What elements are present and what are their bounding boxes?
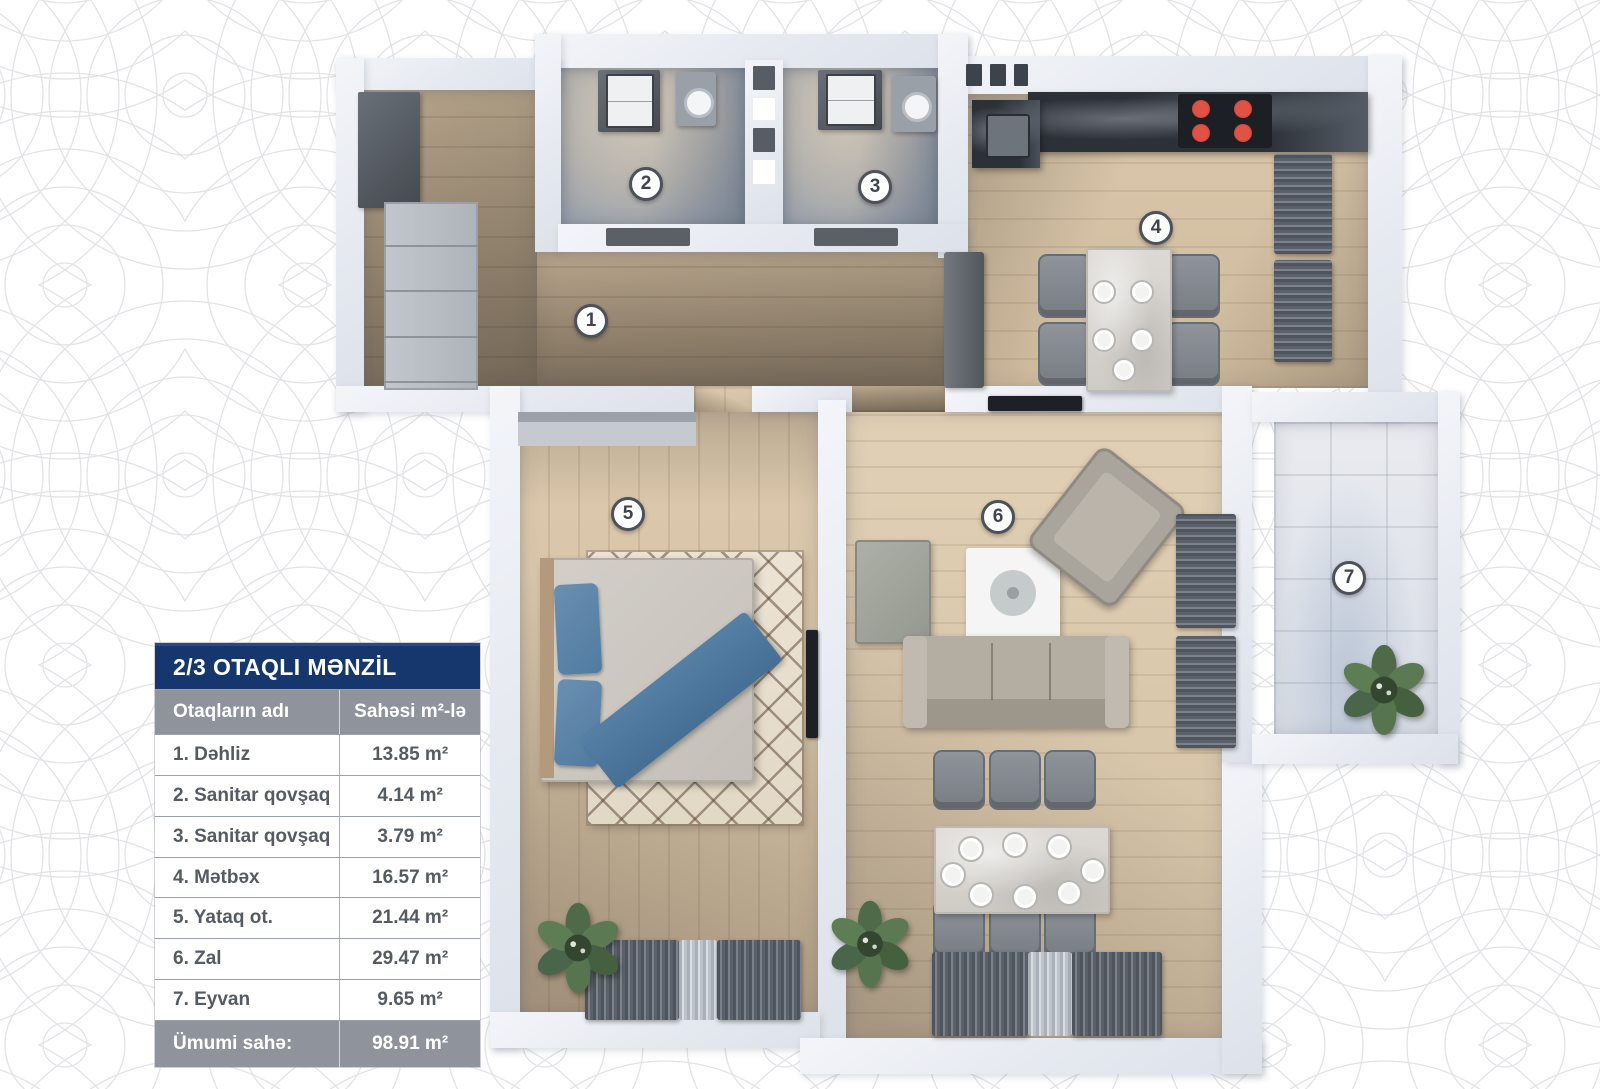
- plant: [530, 900, 626, 996]
- plate: [940, 862, 966, 888]
- room-badge-3: 3: [858, 170, 892, 204]
- dining-chair: [1044, 750, 1096, 810]
- hallway-shelving: [384, 202, 478, 390]
- bathroom2-door-threshold: [606, 228, 690, 246]
- room-area: 3.79 m²: [340, 817, 480, 857]
- stove-burner: [1192, 124, 1210, 142]
- bed-headboard: [540, 558, 554, 778]
- plate: [1092, 280, 1116, 304]
- sofa-armrest: [1105, 636, 1129, 728]
- room-area: 9.65 m²: [340, 980, 480, 1020]
- room-area: 29.47 m²: [340, 939, 480, 979]
- hallway-wardrobe: [358, 92, 420, 208]
- room-badge-2: 2: [629, 167, 663, 201]
- plate: [1130, 280, 1154, 304]
- kitchen-chair: [1166, 254, 1220, 318]
- floor-plan-page: 1 2 3 4 5 6 7 2/3 OTAQLI MƏNZİL Otaqları…: [0, 0, 1600, 1089]
- kitchen-sink: [986, 114, 1030, 158]
- dining-chair: [989, 750, 1041, 810]
- shaft-niche: [753, 98, 775, 120]
- legend-header-area: Sahəsi m²-lə: [340, 690, 480, 734]
- room-badge-1: 1: [574, 304, 608, 338]
- vent-window: [1014, 64, 1028, 86]
- bathroom3-cabinet-front: [826, 74, 876, 126]
- wall-top-hallway: [336, 58, 560, 90]
- shaft-niche: [753, 160, 775, 184]
- legend-footer-row: Ümumi sahə: 98.91 m²: [155, 1020, 480, 1067]
- legend-row: 3. Sanitar qovşaq 3.79 m²: [155, 816, 480, 857]
- room-name: 7. Eyvan: [155, 980, 340, 1020]
- kitchen-chair: [1038, 322, 1092, 386]
- plate: [1092, 328, 1116, 352]
- bedroom-window-curtain-light: [679, 940, 717, 1020]
- wall-living-right: [1222, 750, 1262, 1074]
- vent-window: [966, 64, 982, 86]
- plant: [1336, 642, 1432, 738]
- wall-balcony-bottom: [1252, 734, 1458, 764]
- sofa-cushion-divider: [991, 643, 993, 700]
- shaft-niche: [753, 66, 775, 90]
- sofa: [903, 636, 1129, 728]
- room-name: 4. Mətbəx: [155, 858, 340, 898]
- bathroom2-cabinet-front: [606, 74, 654, 128]
- living-window-curtain-light: [1028, 952, 1072, 1036]
- living-entry-opening: [852, 386, 945, 412]
- plate: [1130, 328, 1154, 352]
- room-area: 13.85 m²: [340, 735, 480, 775]
- wall-bathroom2-left: [535, 34, 561, 252]
- legend-row: 1. Dəhliz 13.85 m²: [155, 734, 480, 775]
- plate: [958, 836, 984, 862]
- plate: [1112, 358, 1136, 382]
- kitchen-chair: [1038, 254, 1092, 318]
- kitchen-chair: [1166, 322, 1220, 386]
- room-badge-6: 6: [981, 500, 1015, 534]
- living-window-curtain: [932, 952, 1028, 1036]
- legend-row: 2. Sanitar qovşaq 4.14 m²: [155, 775, 480, 816]
- bedroom-closet: [518, 412, 696, 446]
- room-badge-5: 5: [611, 497, 645, 531]
- bedroom-door-opening: [694, 386, 752, 412]
- plate: [1080, 858, 1106, 884]
- legend-body: 1. Dəhliz 13.85 m² 2. Sanitar qovşaq 4.1…: [155, 734, 480, 1020]
- room-name: 1. Dəhliz: [155, 735, 340, 775]
- living-window-curtain: [1072, 952, 1162, 1036]
- plate: [968, 882, 994, 908]
- living-side-curtain: [1176, 636, 1236, 748]
- plate: [1002, 832, 1028, 858]
- living-side-curtain: [1176, 514, 1236, 628]
- sofa-back: [903, 699, 1129, 728]
- wall-kitchen-right: [1368, 56, 1402, 418]
- legend-row: 7. Eyvan 9.65 m²: [155, 979, 480, 1020]
- bedroom-window-curtain: [717, 940, 801, 1020]
- kitchen-window-curtain: [1274, 154, 1332, 254]
- dining-chair: [933, 750, 985, 810]
- room-badge-4: 4: [1139, 211, 1173, 245]
- room-name: 2. Sanitar qovşaq: [155, 776, 340, 816]
- room-badge-7: 7: [1332, 561, 1366, 595]
- living-room-tv: [988, 396, 1082, 411]
- sofa-cushion-divider: [1049, 643, 1051, 700]
- bathroom3-door-threshold: [814, 228, 898, 246]
- room-area: 16.57 m²: [340, 858, 480, 898]
- stove-burner: [1234, 100, 1252, 118]
- plate: [1056, 880, 1082, 906]
- room-name: 3. Sanitar qovşaq: [155, 817, 340, 857]
- legend-table: 2/3 OTAQLI MƏNZİL Otaqların adı Sahəsi m…: [155, 643, 480, 1067]
- legend-row: 6. Zal 29.47 m²: [155, 938, 480, 979]
- bathroom2-basin: [684, 88, 714, 118]
- coffee-table-tray: [990, 570, 1036, 616]
- shaft-niche: [753, 128, 775, 152]
- room-name: 6. Zal: [155, 939, 340, 979]
- bathroom3-basin: [902, 92, 932, 122]
- plate: [1012, 884, 1038, 910]
- plant: [824, 898, 916, 990]
- legend-row: 4. Mətbəx 16.57 m²: [155, 857, 480, 898]
- kitchen-stove: [1178, 94, 1272, 148]
- legend-row: 5. Yataq ot. 21.44 m²: [155, 897, 480, 938]
- kitchen-window-curtain: [1274, 260, 1332, 362]
- sofa-armrest: [903, 636, 927, 728]
- room-area: 4.14 m²: [340, 776, 480, 816]
- legend-header-row: Otaqların adı Sahəsi m²-lə: [155, 689, 480, 734]
- stove-burner: [1192, 100, 1210, 118]
- pouf-chair: [855, 540, 931, 644]
- stove-burner: [1234, 124, 1252, 142]
- total-area-label: Ümumi sahə:: [155, 1021, 340, 1067]
- room-area: 21.44 m²: [340, 898, 480, 938]
- bedroom-tv: [806, 630, 818, 738]
- plate: [1046, 834, 1072, 860]
- bed-pillow: [554, 583, 603, 675]
- wall-living-bottom: [800, 1038, 1262, 1074]
- total-area-value: 98.91 m²: [340, 1021, 480, 1067]
- vent-window: [990, 64, 1006, 86]
- room-name: 5. Yataq ot.: [155, 898, 340, 938]
- legend-title: 2/3 OTAQLI MƏNZİL: [155, 643, 480, 689]
- legend-header-name: Otaqların adı: [155, 690, 340, 734]
- kitchen-fridge: [944, 252, 984, 388]
- wall-balcony-top: [1252, 392, 1458, 422]
- wall-balcony-right: [1438, 392, 1460, 764]
- wall-bedroom-left: [490, 386, 520, 1048]
